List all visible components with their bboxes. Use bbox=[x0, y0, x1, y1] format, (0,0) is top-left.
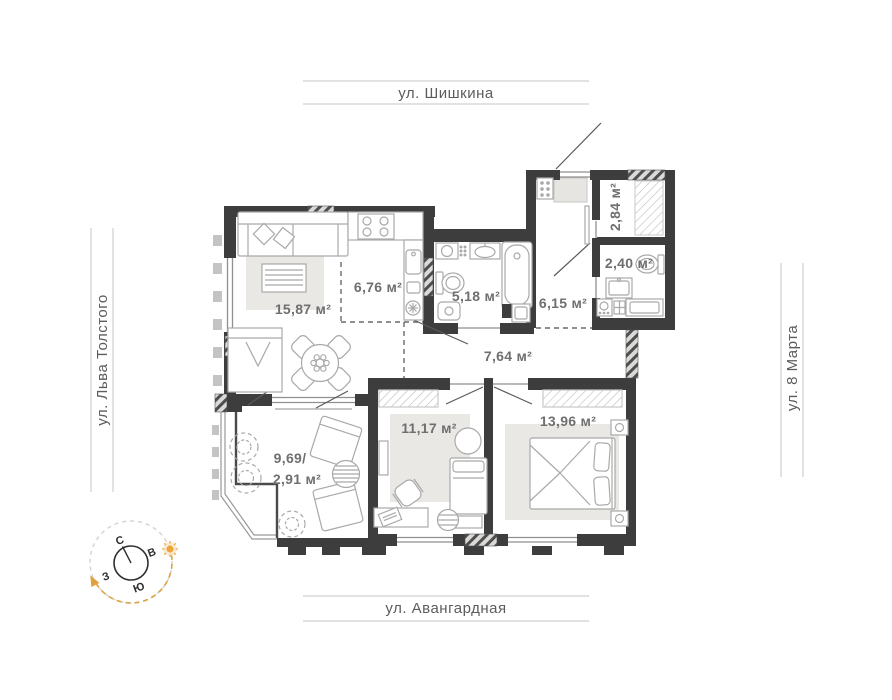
storage-shelving bbox=[635, 181, 663, 235]
hatch-kitchen-wall bbox=[424, 258, 433, 296]
corridor-label: 7,64 м² bbox=[484, 348, 532, 364]
facade-stub bbox=[322, 547, 340, 555]
balcony-table bbox=[333, 461, 360, 488]
facade-stub bbox=[362, 546, 386, 555]
compass: С В З Ю bbox=[86, 521, 178, 603]
floor-plan-canvas: ул. Шишкина ул. Авангардная ул. Льва Тол… bbox=[0, 0, 892, 700]
lounge-chair bbox=[313, 481, 364, 532]
bedroom-small-wardrobe bbox=[379, 390, 438, 407]
balcony-label-reduced: 2,91 м² bbox=[273, 471, 321, 487]
double-bed bbox=[530, 438, 615, 509]
hatch-balcony-corner bbox=[215, 394, 227, 412]
laundry-nook bbox=[597, 299, 663, 316]
balcony-parapet bbox=[277, 538, 378, 547]
nightstand-top bbox=[611, 420, 628, 435]
street-left: ул. Льва Толстого bbox=[91, 228, 113, 492]
window-bedroom-small bbox=[397, 534, 453, 546]
shower-corner bbox=[502, 304, 530, 322]
striped-pouf bbox=[438, 510, 459, 531]
wall-bottom-b bbox=[577, 534, 636, 546]
wall-storage-wc-divider bbox=[597, 237, 665, 245]
wall-bedrooms-top-left bbox=[368, 378, 450, 390]
hatch-right-pier bbox=[626, 330, 638, 378]
facade-stub bbox=[464, 546, 484, 555]
street-bottom: ул. Авангардная bbox=[303, 596, 589, 621]
wc-label: 2,40 м² bbox=[605, 255, 653, 271]
wall-hall-right-a bbox=[592, 180, 600, 220]
bed-pillow bbox=[594, 443, 611, 472]
hall-mirror bbox=[585, 206, 589, 244]
street-top-label: ул. Шишкина bbox=[398, 85, 494, 102]
balcony-label-total: 9,69/ bbox=[274, 450, 307, 466]
bedroom-small-door-swing bbox=[446, 387, 483, 404]
compass-south: Ю bbox=[132, 580, 147, 595]
street-left-label: ул. Льва Толстого bbox=[94, 294, 111, 426]
wall-right-block-bottom bbox=[592, 318, 675, 330]
living-wardrobe bbox=[228, 328, 282, 392]
wc-sink bbox=[606, 278, 632, 298]
plant bbox=[279, 511, 305, 537]
hallway-label: 6,15 м² bbox=[539, 295, 587, 311]
street-right-label: ул. 8 Марта bbox=[784, 325, 801, 411]
wall-left-upper bbox=[224, 206, 236, 258]
bathroom-sink bbox=[470, 243, 500, 259]
street-right: ул. 8 Марта bbox=[781, 263, 803, 477]
kitchen-tray bbox=[407, 282, 420, 293]
window-bedroom-master bbox=[508, 534, 577, 546]
entry-door-swing bbox=[556, 123, 601, 169]
window-living-bottom bbox=[272, 394, 355, 406]
living-room-label: 15,87 м² bbox=[275, 301, 331, 317]
facade-stub bbox=[288, 547, 306, 555]
bedroom-small-bed bbox=[450, 458, 487, 514]
facade-stub bbox=[532, 546, 552, 555]
bathtub bbox=[502, 242, 532, 308]
wall-right-outer bbox=[665, 170, 675, 330]
round-pouf bbox=[455, 428, 481, 454]
lounge-chair bbox=[310, 416, 363, 469]
floor-plan-page: ул. Шишкина ул. Авангардная ул. Льва Тол… bbox=[0, 0, 892, 700]
bedroom-master-wardrobe bbox=[543, 390, 622, 407]
nightstand-bottom bbox=[611, 511, 628, 526]
bathroom-vanity bbox=[436, 243, 466, 259]
street-top: ул. Шишкина bbox=[303, 81, 589, 104]
plant bbox=[230, 433, 258, 461]
wall-bedrooms-top-right bbox=[528, 378, 626, 390]
bathroom-fixtures bbox=[436, 242, 532, 322]
bidet bbox=[438, 302, 460, 320]
compass-west: З bbox=[101, 570, 112, 584]
kitchen-hob-icon bbox=[406, 301, 420, 315]
balcony-glazing bbox=[221, 412, 277, 539]
bedroom-small-label: 11,17 м² bbox=[401, 420, 457, 436]
hatch-storage-top bbox=[628, 170, 665, 180]
bed-bench bbox=[455, 516, 482, 528]
hall-wardrobe bbox=[554, 178, 587, 202]
bedroom-master-label: 13,96 м² bbox=[540, 413, 596, 429]
kitchen-sink bbox=[406, 250, 421, 274]
facade-stub bbox=[604, 546, 624, 555]
coffee-table bbox=[262, 264, 306, 292]
stove bbox=[358, 214, 394, 239]
dining-table bbox=[302, 345, 339, 382]
bedroom-master-door-swing bbox=[494, 387, 532, 404]
wall-shelf bbox=[379, 441, 388, 475]
storage-shelves bbox=[635, 181, 663, 235]
storage-label: 2,84 м² bbox=[607, 183, 623, 231]
compass-north: С bbox=[114, 534, 126, 548]
hatch-bottom-pier bbox=[465, 534, 497, 546]
bathroom-label: 5,18 м² bbox=[452, 288, 500, 304]
bed-pillow bbox=[594, 477, 611, 506]
bedroom-master-furniture bbox=[530, 390, 628, 526]
kitchen-furniture bbox=[348, 212, 423, 320]
storage-door-swing bbox=[554, 243, 590, 276]
window-living-left bbox=[224, 258, 236, 332]
corridor-leader-line bbox=[409, 318, 468, 344]
street-bottom-label: ул. Авангардная bbox=[385, 600, 506, 617]
sun-icon bbox=[162, 541, 178, 557]
kitchen-label: 6,76 м² bbox=[354, 279, 402, 295]
wall-bathroom-top bbox=[423, 229, 534, 242]
shoe-cabinet bbox=[537, 178, 553, 199]
